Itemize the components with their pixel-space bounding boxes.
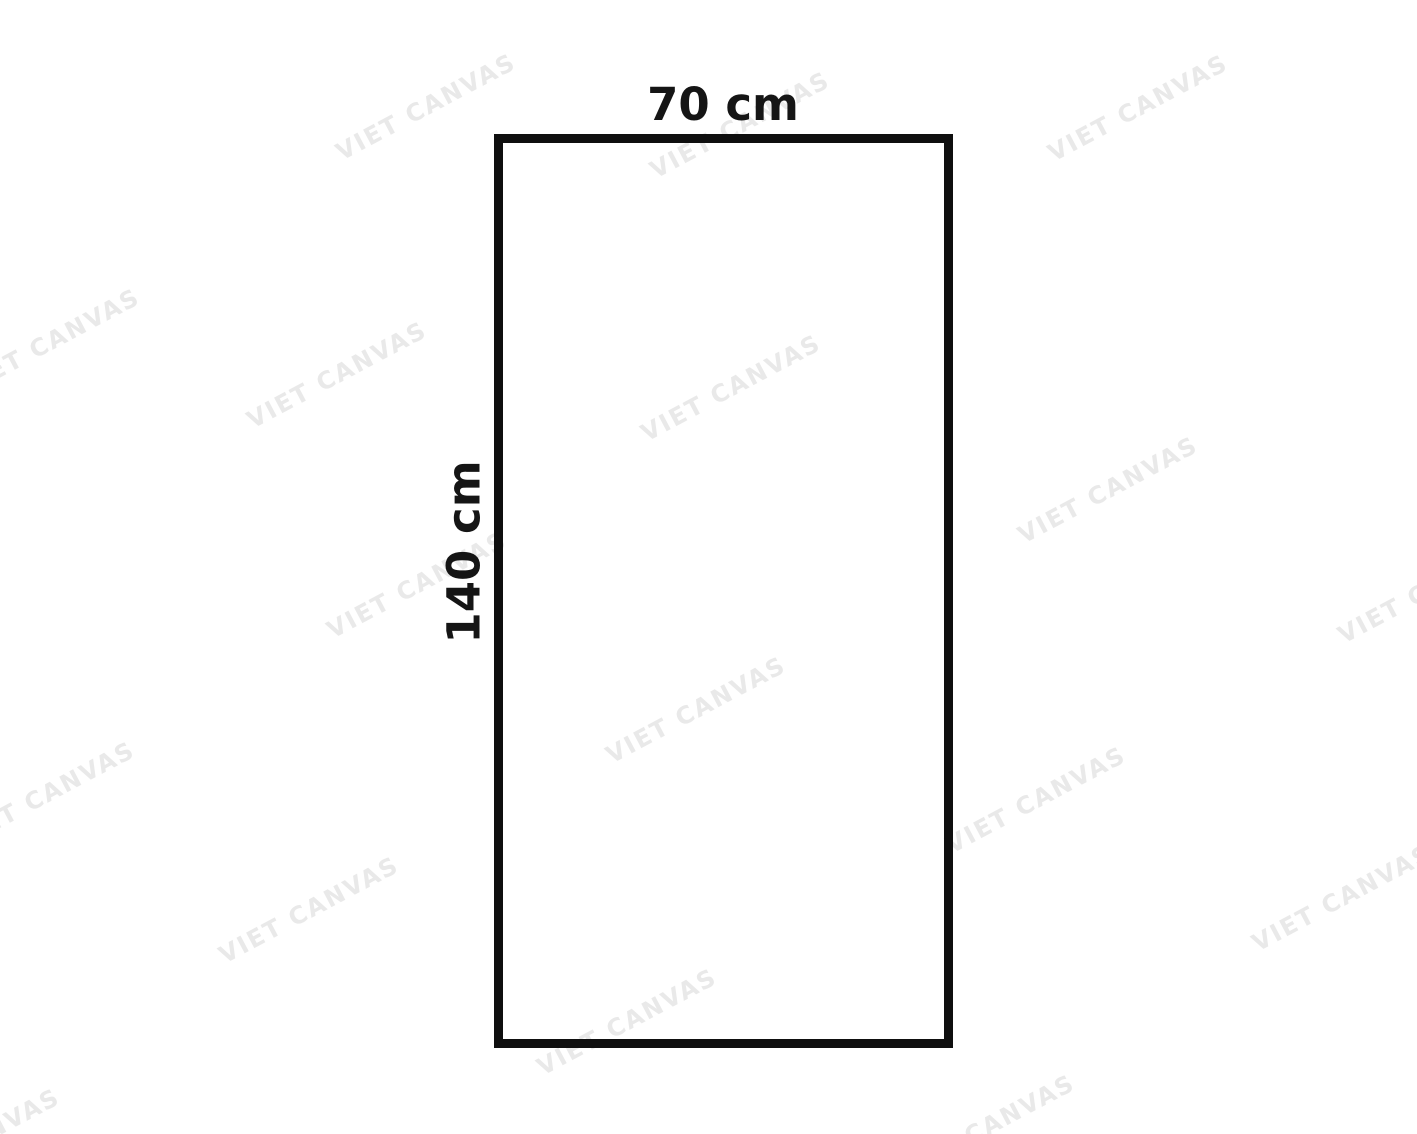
watermark-text: VIET CANVAS	[1043, 49, 1232, 167]
watermark-text: VIET CANVAS	[214, 851, 403, 969]
watermark-text: VIET CANVAS	[1333, 531, 1417, 649]
watermark-text: VIET CANVAS	[0, 283, 145, 401]
watermark-text: VIET CANVAS	[0, 736, 140, 854]
watermark-text: VIET CANVAS	[0, 1083, 65, 1134]
watermark-text: VIET CANVAS	[242, 316, 431, 434]
watermark-text: VIET CANVAS	[1247, 839, 1417, 957]
watermark-text: VIET CANVAS	[890, 1069, 1079, 1134]
height-dimension-label: 140 cm	[442, 460, 487, 643]
width-dimension-label: 70 cm	[647, 82, 799, 127]
watermark-text: VIET CANVAS	[941, 741, 1130, 859]
watermark-text: VIET CANVAS	[331, 48, 520, 166]
watermark-text: VIET CANVAS	[1013, 431, 1202, 549]
diagram-canvas: VIET CANVAS VIET CANVAS VIET CANVAS VIET…	[0, 0, 1417, 1134]
canvas-size-rectangle	[494, 134, 953, 1048]
